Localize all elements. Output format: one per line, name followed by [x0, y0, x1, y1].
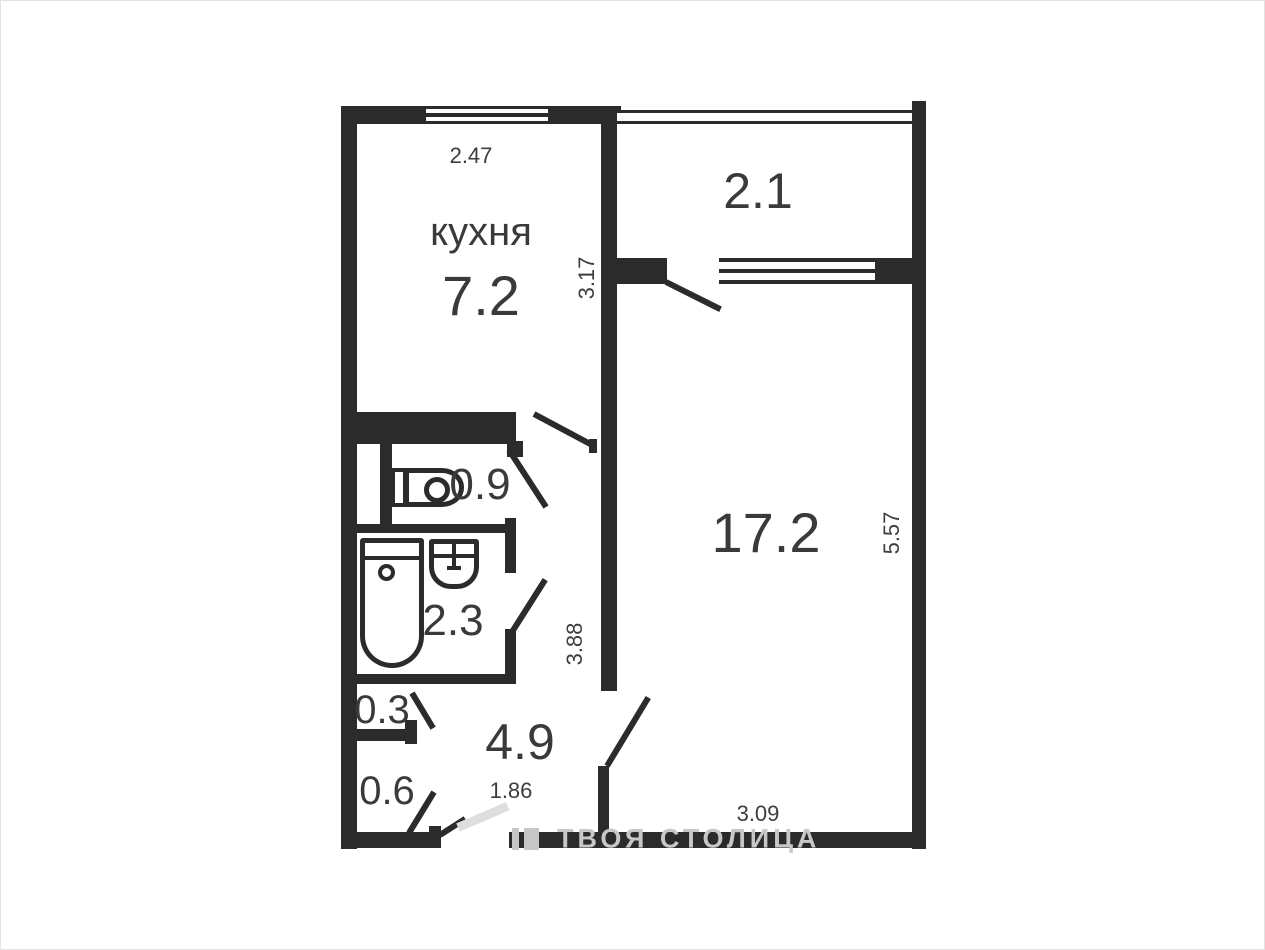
balcony-glazing	[617, 110, 912, 124]
hallway-area-label: 4.9	[485, 717, 555, 767]
dim-hallway-width: 1.86	[490, 780, 533, 802]
dim-living-depth: 5.57	[881, 512, 903, 555]
wall-bottom-left	[341, 832, 441, 848]
floor-plan: кухня 7.2 2.1 17.2 0.9 2.3 0.3 4.9 0.6 2…	[1, 1, 1264, 949]
vent-shaft-block	[357, 412, 516, 444]
kitchen-room-label: кухня	[430, 212, 532, 252]
bathroom-area-label: 2.3	[422, 599, 483, 643]
bathtub-drain-icon	[378, 564, 395, 581]
wc-door-leaf	[506, 448, 548, 508]
bathroom-door-leaf	[509, 578, 547, 634]
wall-bathroom-top	[357, 524, 515, 533]
wall-balcony-bottom-right	[873, 258, 912, 284]
balcony-door-leaf	[665, 279, 722, 312]
sink-icon	[429, 539, 479, 589]
floor-plan-image: кухня 7.2 2.1 17.2 0.9 2.3 0.3 4.9 0.6 2…	[0, 0, 1265, 950]
watermark-text: ТВОЯ СТОЛИЦА	[557, 824, 820, 855]
wall-bathroom-bottom	[357, 674, 515, 684]
balcony-area-label: 2.1	[723, 166, 793, 216]
watermark-logo-bar	[512, 828, 519, 850]
sink-tap-icon	[452, 544, 456, 568]
living-area-label: 17.2	[712, 505, 821, 561]
wall-kitchen-living	[601, 106, 617, 691]
dim-kitchen-width: 2.47	[450, 145, 493, 167]
closet-small-area-label: 0.3	[354, 690, 410, 730]
wall-bathroom-right-upper	[505, 518, 516, 573]
kitchen-window	[426, 106, 548, 124]
bathtub-rim	[365, 556, 419, 560]
closet-area-label: 0.6	[359, 771, 415, 811]
dim-kitchen-depth: 3.17	[576, 257, 598, 300]
living-door-leaf	[604, 696, 650, 768]
dim-living-width: 3.09	[737, 803, 780, 825]
bathtub-icon	[360, 538, 424, 668]
wall-right	[912, 101, 926, 849]
sink-tap-base	[447, 566, 461, 570]
dim-hallway-depth: 3.88	[564, 623, 586, 666]
balcony-window	[719, 258, 875, 284]
watermark-logo-square	[524, 828, 539, 850]
kitchen-area-label: 7.2	[442, 268, 520, 324]
kitchen-door-leaf	[533, 411, 596, 448]
wall-balcony-bottom-left	[617, 258, 667, 284]
entrance-door-jamb	[429, 826, 441, 848]
wc-area-label: 0.9	[449, 463, 510, 507]
toilet-seat-icon	[424, 477, 450, 503]
